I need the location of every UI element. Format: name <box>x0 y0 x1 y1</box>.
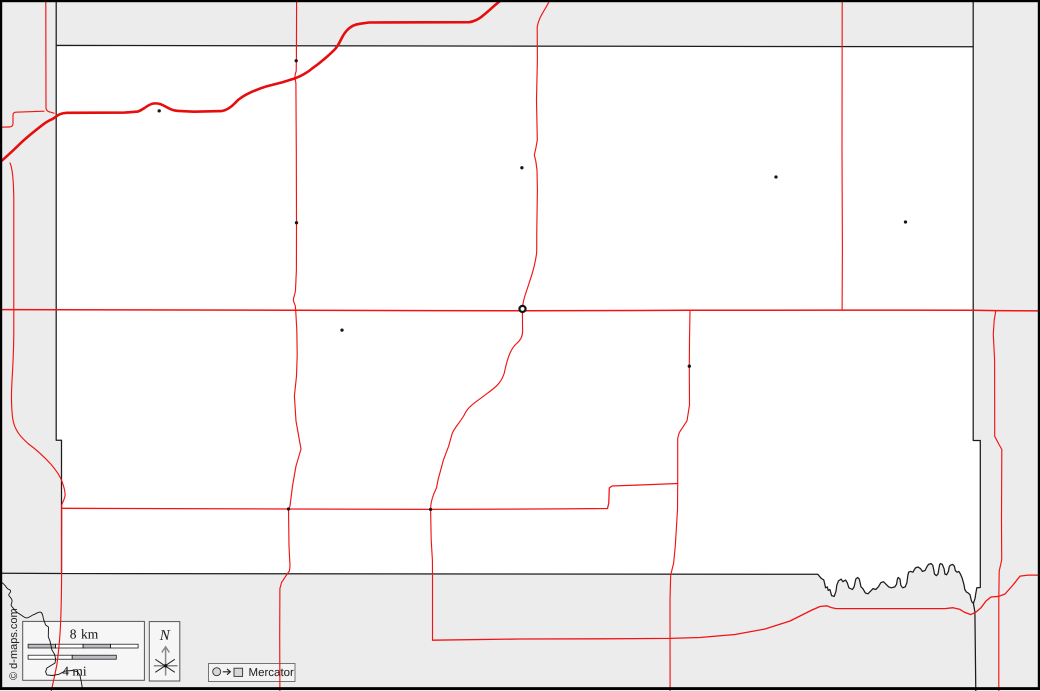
svg-text:© d-maps.com: © d-maps.com <box>8 608 20 680</box>
svg-text:N: N <box>159 628 171 644</box>
svg-text:8 km: 8 km <box>70 627 99 642</box>
svg-text:Mercator: Mercator <box>249 667 295 679</box>
